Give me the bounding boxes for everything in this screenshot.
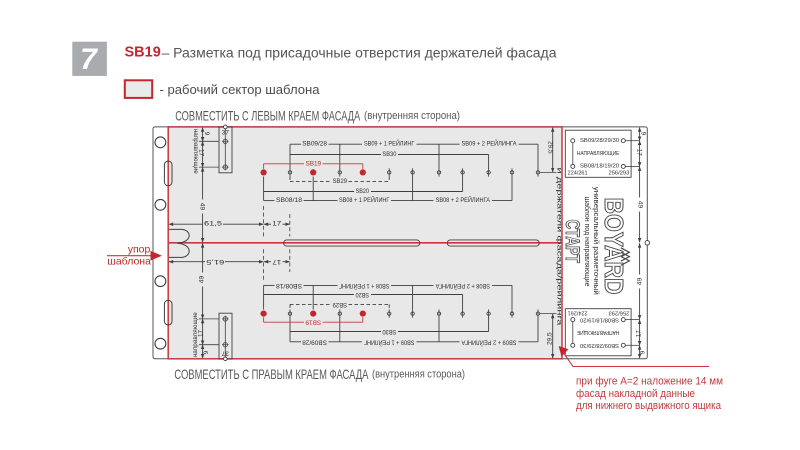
svg-text:– Разметка под присадочные отв: – Разметка под присадочные отверстия дер… xyxy=(162,45,557,60)
svg-text:SB09/28: SB09/28 xyxy=(302,338,327,345)
svg-text:SB08/18: SB08/18 xyxy=(276,197,302,204)
svg-text:17: 17 xyxy=(635,149,642,157)
svg-text:49: 49 xyxy=(636,278,643,286)
svg-text:224/261: 224/261 xyxy=(568,170,588,176)
svg-text:SB09 + 1 РЕЙЛИНГ: SB09 + 1 РЕЙЛИНГ xyxy=(364,139,415,148)
svg-text:- рабочий сектор шаблона: - рабочий сектор шаблона xyxy=(160,82,321,97)
svg-text:7: 7 xyxy=(80,43,98,76)
svg-text:(внутренняя сторона): (внутренняя сторона) xyxy=(372,369,465,381)
svg-text:SB30: SB30 xyxy=(382,151,396,158)
svg-text:256/293: 256/293 xyxy=(609,310,630,316)
svg-text:шаблона: шаблона xyxy=(107,255,151,267)
svg-text:упор: упор xyxy=(128,243,151,255)
svg-text:SB08 + 1 РЕЙЛИНГ: SB08 + 1 РЕЙЛИНГ xyxy=(339,195,390,204)
svg-text:SB20: SB20 xyxy=(355,291,369,298)
svg-text:SB20: SB20 xyxy=(356,188,370,195)
svg-text:SB09/28: SB09/28 xyxy=(302,141,327,148)
svg-text:17: 17 xyxy=(635,330,642,338)
svg-text:НАПРАВЛЯЮЩИЕ: НАПРАВЛЯЮЩИЕ xyxy=(577,151,620,157)
svg-text:SB08 + 2 РЕЙЛИНГА: SB08 + 2 РЕЙЛИНГА xyxy=(435,282,490,291)
svg-text:при фуге А=2 наложение 14 мм: при фуге А=2 наложение 14 мм xyxy=(576,376,723,388)
svg-text:37: 37 xyxy=(222,129,230,136)
svg-text:61,5: 61,5 xyxy=(206,258,224,265)
svg-text:НАПРАВЛЯЮЩИЕ: НАПРАВЛЯЮЩИЕ xyxy=(577,329,620,335)
svg-text:SB29: SB29 xyxy=(333,178,348,185)
svg-text:49: 49 xyxy=(636,201,643,209)
svg-text:SB19: SB19 xyxy=(125,44,161,60)
svg-text:61,5: 61,5 xyxy=(204,221,222,228)
svg-text:SB09 + 2 РЕЙЛИНГА: SB09 + 2 РЕЙЛИНГА xyxy=(462,139,517,148)
svg-text:SB19: SB19 xyxy=(305,319,321,326)
svg-text:SB09 + 1 РЕЙЛИНГ: SB09 + 1 РЕЙЛИНГ xyxy=(364,338,415,347)
svg-text:49: 49 xyxy=(199,276,206,284)
svg-text:SB08/18/19/20: SB08/18/19/20 xyxy=(580,164,619,170)
svg-text:SB09/28/29/30: SB09/28/29/30 xyxy=(580,138,619,144)
svg-text:SB09 + 2 РЕЙЛИНГА: SB09 + 2 РЕЙЛИНГА xyxy=(461,338,516,347)
svg-text:9: 9 xyxy=(639,132,646,136)
svg-text:256/293: 256/293 xyxy=(609,170,630,176)
svg-text:224/261: 224/261 xyxy=(568,310,588,316)
svg-text:SB29: SB29 xyxy=(332,301,347,308)
svg-text:СОВМЕСТИТЬ С ЛЕВЫМ КРАЕМ ФАСАД: СОВМЕСТИТЬ С ЛЕВЫМ КРАЕМ ФАСАДА xyxy=(175,107,360,123)
svg-text:49: 49 xyxy=(199,203,206,211)
svg-text:17: 17 xyxy=(197,330,204,338)
svg-text:(внутренняя сторона): (внутренняя сторона) xyxy=(364,110,460,122)
svg-text:9: 9 xyxy=(203,132,210,136)
svg-text:шаблон под направляющие: шаблон под направляющие xyxy=(583,197,592,287)
svg-text:29,5: 29,5 xyxy=(546,332,553,345)
svg-text:фасад накладной данные: фасад накладной данные xyxy=(576,388,695,400)
svg-text:SB08 + 2 РЕЙЛИНГА: SB08 + 2 РЕЙЛИНГА xyxy=(436,195,491,204)
svg-text:SB09/28/29/30: SB09/28/29/30 xyxy=(580,342,619,348)
svg-text:37: 37 xyxy=(221,350,229,357)
svg-text:9: 9 xyxy=(639,350,646,354)
svg-text:СОВМЕСТИТЬ С ПРАВЫМ КРАЕМ ФАСА: СОВМЕСТИТЬ С ПРАВЫМ КРАЕМ ФАСАДА xyxy=(174,366,368,382)
svg-text:SB08/18: SB08/18 xyxy=(276,282,302,289)
svg-text:BOYARD: BOYARD xyxy=(599,198,627,295)
svg-text:SB08 + 1 РЕЙЛИНГ: SB08 + 1 РЕЙЛИНГ xyxy=(339,282,390,291)
svg-text:17: 17 xyxy=(272,221,281,228)
svg-text:SB19: SB19 xyxy=(305,160,321,167)
svg-text:для нижнего выдвижного ящика: для нижнего выдвижного ящика xyxy=(576,400,722,412)
svg-text:17: 17 xyxy=(272,258,281,265)
svg-text:9: 9 xyxy=(203,350,210,354)
svg-text:29,5: 29,5 xyxy=(546,141,553,154)
svg-text:SB30: SB30 xyxy=(382,328,396,335)
svg-text:СТАРТ: СТАРТ xyxy=(561,220,582,264)
svg-text:17: 17 xyxy=(197,149,204,157)
svg-text:SB08/18/19/20: SB08/18/19/20 xyxy=(580,316,619,322)
